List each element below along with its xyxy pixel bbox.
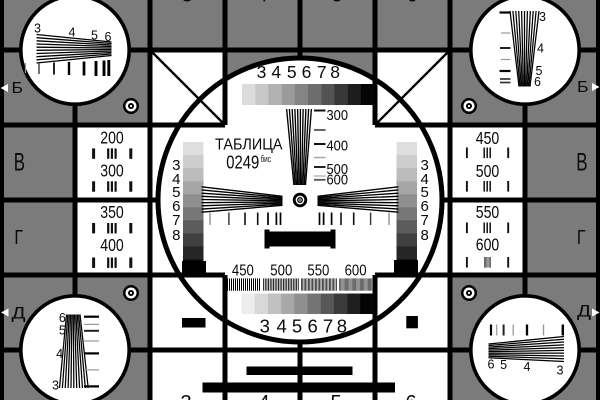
svg-text:3: 3 <box>557 363 564 377</box>
svg-text:4: 4 <box>524 360 531 374</box>
svg-text:500: 500 <box>476 161 500 181</box>
svg-text:3: 3 <box>260 316 270 337</box>
svg-text:4: 4 <box>277 316 287 337</box>
svg-text:5: 5 <box>287 62 297 82</box>
svg-text:6: 6 <box>488 357 495 371</box>
svg-text:600: 600 <box>476 235 500 255</box>
svg-text:300: 300 <box>327 107 349 124</box>
svg-text:6: 6 <box>406 0 417 7</box>
svg-text:4: 4 <box>271 62 281 82</box>
svg-text:бис: бис <box>261 154 272 164</box>
svg-text:350: 350 <box>100 202 124 222</box>
svg-text:300: 300 <box>100 161 124 181</box>
svg-text:5: 5 <box>331 0 342 7</box>
svg-text:600: 600 <box>327 172 349 189</box>
svg-text:4: 4 <box>537 42 544 56</box>
svg-text:6: 6 <box>302 62 312 82</box>
svg-text:550: 550 <box>307 263 329 280</box>
svg-text:3: 3 <box>52 379 59 393</box>
svg-text:8: 8 <box>421 227 429 244</box>
svg-text:6: 6 <box>534 75 541 89</box>
svg-text:3: 3 <box>180 392 191 400</box>
svg-text:5: 5 <box>500 358 507 372</box>
svg-text:4: 4 <box>69 26 76 40</box>
svg-text:Д: Д <box>12 304 27 323</box>
svg-text:4: 4 <box>256 0 267 7</box>
svg-text:3: 3 <box>539 10 546 24</box>
svg-text:8: 8 <box>172 227 180 244</box>
svg-text:550: 550 <box>476 202 500 222</box>
svg-text:4: 4 <box>56 347 63 361</box>
svg-text:8: 8 <box>337 316 347 337</box>
svg-text:600: 600 <box>345 263 367 280</box>
svg-text:7: 7 <box>323 316 333 337</box>
svg-text:0249: 0249 <box>226 153 259 173</box>
svg-text:400: 400 <box>327 138 349 155</box>
svg-text:5: 5 <box>59 323 66 337</box>
svg-text:Г: Г <box>577 227 586 249</box>
svg-text:3: 3 <box>181 0 192 7</box>
svg-text:6: 6 <box>105 30 112 44</box>
svg-text:7: 7 <box>317 62 327 82</box>
svg-text:3: 3 <box>257 62 267 82</box>
svg-text:В: В <box>576 149 587 177</box>
svg-text:400: 400 <box>100 235 124 255</box>
svg-text:5: 5 <box>292 316 302 337</box>
svg-text:3: 3 <box>34 22 41 36</box>
svg-text:500: 500 <box>270 263 292 280</box>
svg-text:Г: Г <box>14 227 23 249</box>
svg-text:6: 6 <box>405 392 416 400</box>
svg-text:Б: Б <box>12 80 24 97</box>
svg-text:200: 200 <box>100 128 124 148</box>
svg-text:Д: Д <box>577 302 592 321</box>
svg-text:В: В <box>14 149 25 177</box>
svg-text:6: 6 <box>307 316 317 337</box>
svg-text:Б: Б <box>577 79 589 96</box>
svg-text:450: 450 <box>232 263 254 280</box>
svg-text:450: 450 <box>476 128 500 148</box>
svg-text:4: 4 <box>258 392 269 400</box>
svg-text:5: 5 <box>330 392 341 400</box>
svg-text:ТАБЛИЦА: ТАБЛИЦА <box>215 137 283 154</box>
svg-text:8: 8 <box>330 62 340 82</box>
svg-text:5: 5 <box>91 29 98 43</box>
